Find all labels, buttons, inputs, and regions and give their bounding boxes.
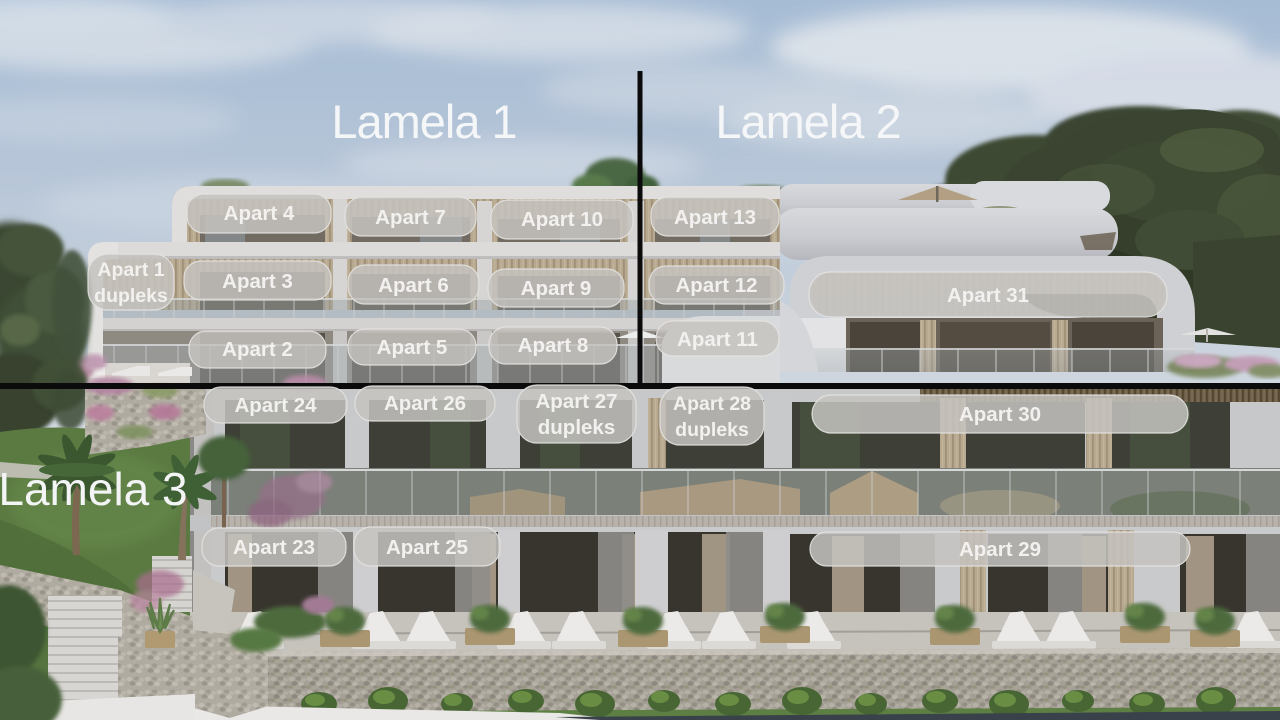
svg-text:Apart 8: Apart 8 bbox=[518, 334, 589, 357]
svg-text:Apart 28: Apart 28 bbox=[673, 393, 751, 415]
svg-text:Apart 10: Apart 10 bbox=[521, 208, 603, 231]
svg-text:Lamela 3: Lamela 3 bbox=[0, 463, 188, 515]
svg-text:Apart 25: Apart 25 bbox=[386, 536, 468, 559]
svg-text:Apart 6: Apart 6 bbox=[378, 274, 449, 297]
svg-text:Apart 9: Apart 9 bbox=[521, 277, 592, 300]
svg-text:Apart 4: Apart 4 bbox=[224, 202, 295, 225]
svg-text:dupleks: dupleks bbox=[94, 285, 168, 307]
svg-text:Apart 29: Apart 29 bbox=[959, 538, 1041, 561]
svg-text:Apart 31: Apart 31 bbox=[947, 284, 1029, 307]
svg-text:dupleks: dupleks bbox=[675, 419, 749, 441]
svg-text:Apart 24: Apart 24 bbox=[234, 394, 317, 417]
svg-text:Apart 30: Apart 30 bbox=[959, 403, 1041, 426]
svg-text:Apart 12: Apart 12 bbox=[675, 274, 757, 297]
svg-text:Apart 13: Apart 13 bbox=[674, 206, 756, 229]
svg-text:Apart 2: Apart 2 bbox=[222, 338, 293, 361]
svg-text:Lamela 2: Lamela 2 bbox=[715, 95, 900, 148]
svg-text:Apart 5: Apart 5 bbox=[377, 336, 448, 359]
svg-text:Apart 1: Apart 1 bbox=[97, 259, 164, 281]
svg-text:Lamela 1: Lamela 1 bbox=[331, 95, 516, 148]
svg-text:Apart 23: Apart 23 bbox=[233, 536, 315, 559]
svg-text:Apart 27: Apart 27 bbox=[535, 390, 617, 413]
svg-text:Apart 26: Apart 26 bbox=[384, 392, 466, 415]
svg-text:dupleks: dupleks bbox=[538, 416, 615, 439]
svg-text:Apart 11: Apart 11 bbox=[677, 328, 758, 351]
svg-text:Apart 3: Apart 3 bbox=[222, 270, 293, 293]
svg-text:Apart 7: Apart 7 bbox=[375, 206, 446, 229]
